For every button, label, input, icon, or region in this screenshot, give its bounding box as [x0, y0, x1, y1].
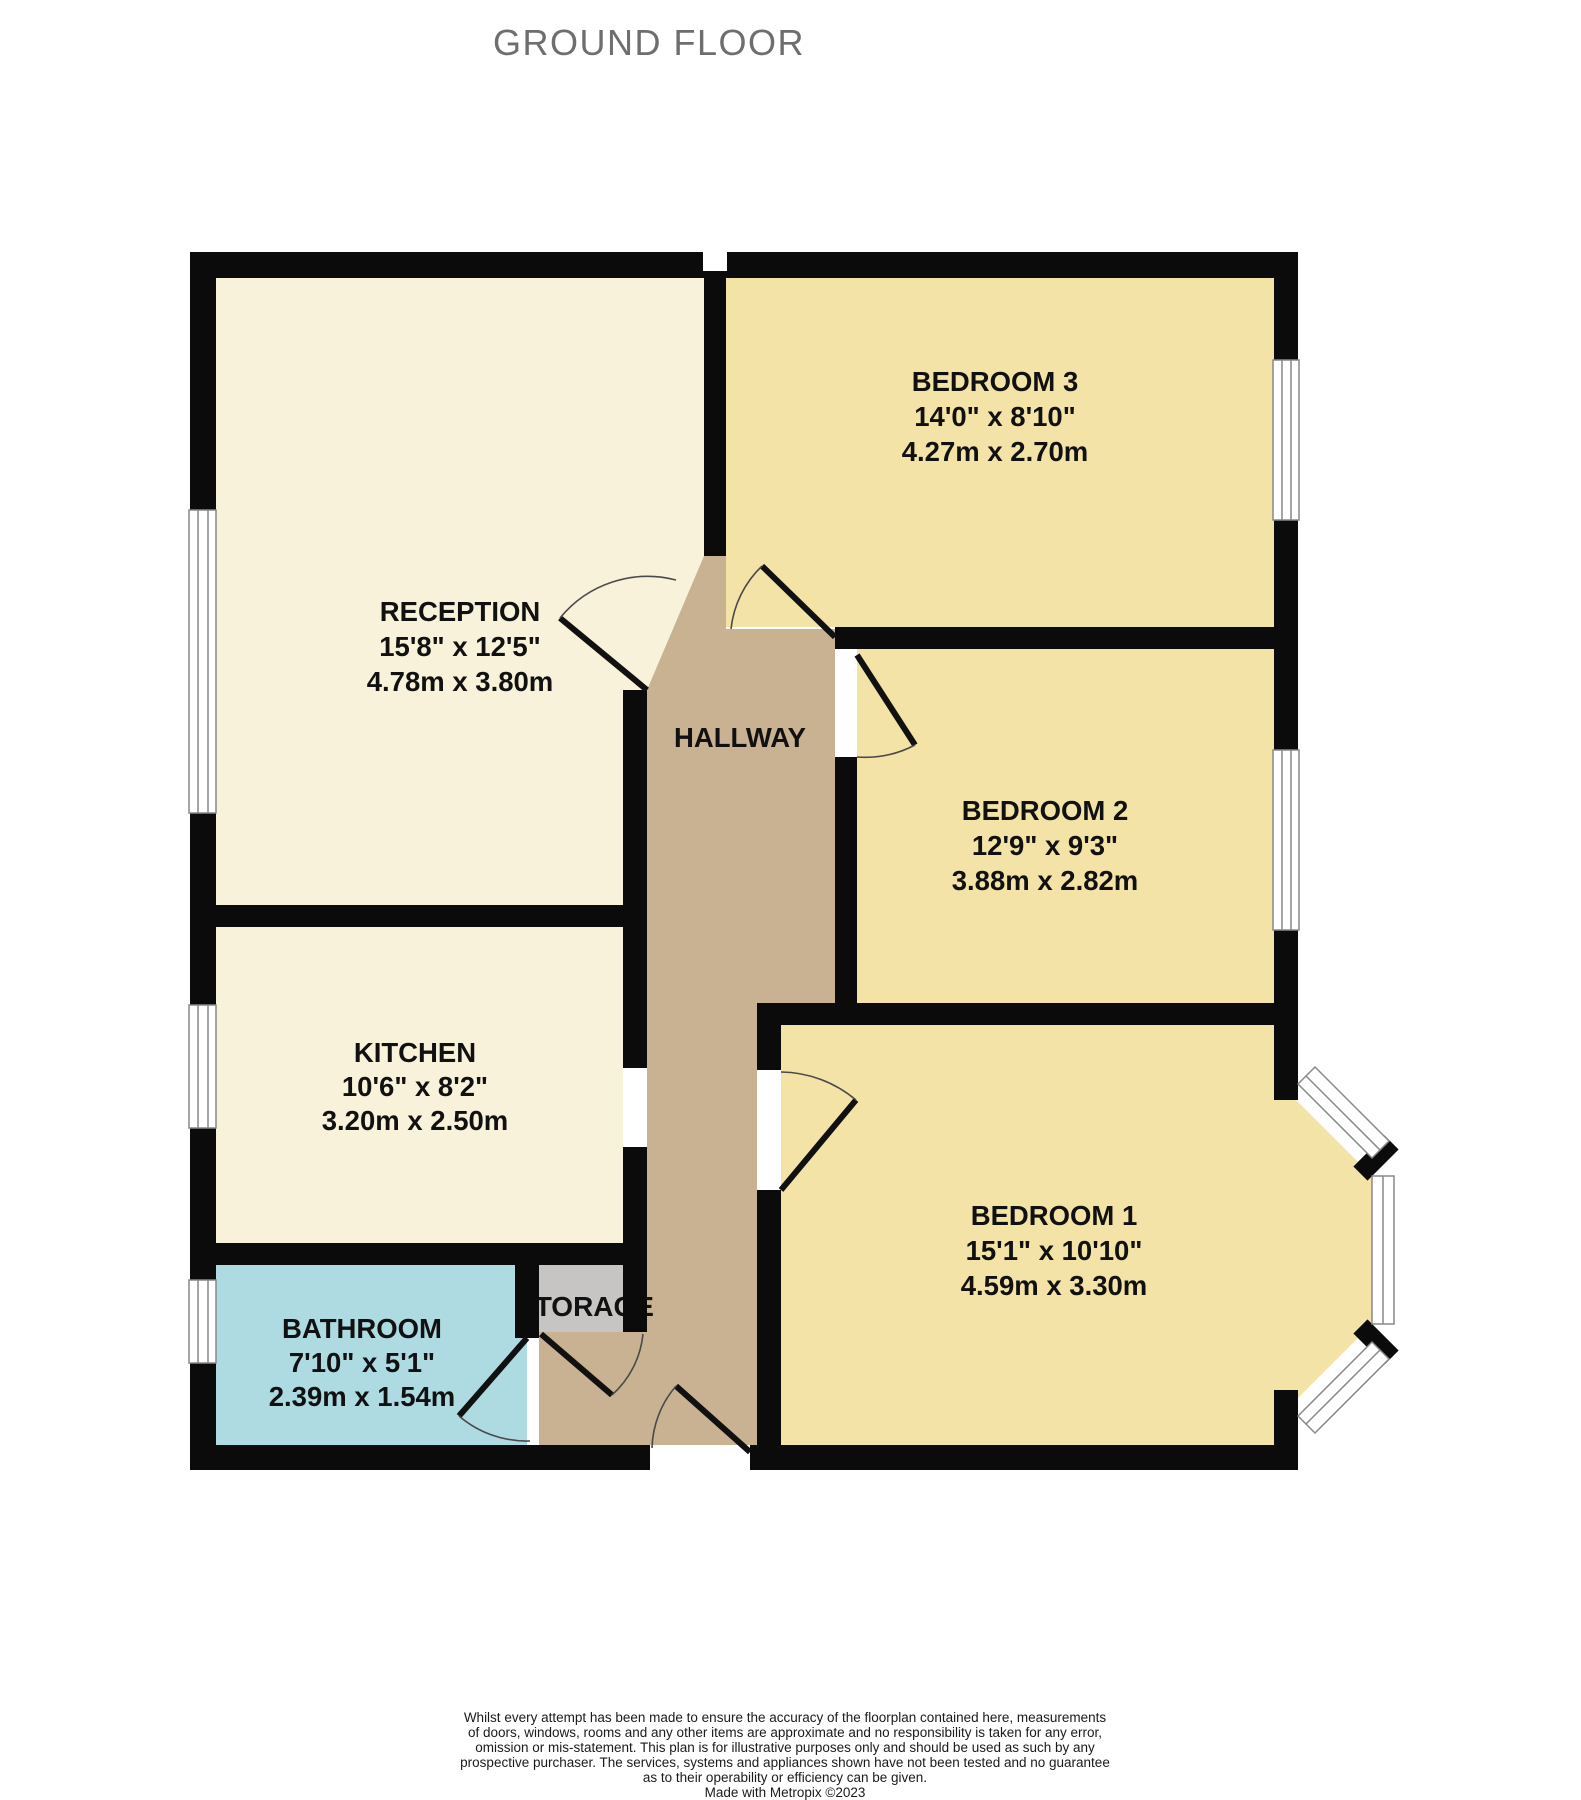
bedroom2-imperial: 12'9" x 9'3": [972, 830, 1118, 861]
wall-reception-kitchen-right: [623, 690, 647, 1068]
bedroom3-window: [1273, 360, 1299, 520]
footer-line: prospective purchaser. The services, sys…: [460, 1755, 1110, 1770]
bedroom1-imperial: 15'1" x 10'10": [966, 1235, 1143, 1266]
bedroom3-label: BEDROOM 3 14'0" x 8'10" 4.27m x 2.70m: [902, 366, 1089, 467]
bedroom3-imperial: 14'0" x 8'10": [914, 401, 1076, 432]
wall-bedroom1-left-upper: [757, 1025, 781, 1070]
wall-bedroom2-left: [835, 757, 857, 1003]
floorplan-page: GROUND FLOOR STORAGE: [0, 0, 1581, 1800]
footer-line: as to their operability or efficiency ca…: [643, 1770, 927, 1785]
bedroom2-label: BEDROOM 2 12'9" x 9'3" 3.88m x 2.82m: [952, 795, 1139, 896]
wall-bedroom3-bedroom2-divider: [835, 627, 1298, 649]
bedroom2-metric: 3.88m x 2.82m: [952, 865, 1139, 896]
bathroom-name: BATHROOM: [282, 1313, 442, 1344]
kitchen-imperial: 10'6" x 8'2": [342, 1071, 488, 1102]
bedroom1-label: BEDROOM 1 15'1" x 10'10" 4.59m x 3.30m: [961, 1200, 1148, 1301]
bedroom3-name: BEDROOM 3: [912, 366, 1079, 397]
wall-bedroom2-bedroom1-divider: [757, 1003, 1298, 1025]
page-title: GROUND FLOOR: [493, 22, 805, 63]
bedroom2-room-area: [857, 649, 1274, 1003]
wall-reception-kitchen-divider: [190, 905, 647, 927]
reception-imperial: 15'8" x 12'5": [379, 631, 541, 662]
reception-label: RECEPTION 15'8" x 12'5" 4.78m x 3.80m: [367, 596, 554, 697]
wall-kitchen-storage-right: [623, 1147, 647, 1332]
bedroom2-window: [1273, 750, 1299, 930]
reception-name: RECEPTION: [380, 596, 540, 627]
bathroom-window: [189, 1280, 216, 1363]
bedroom3-metric: 4.27m x 2.70m: [902, 436, 1089, 467]
wall-top: [190, 252, 1298, 278]
bedroom1-name: BEDROOM 1: [971, 1200, 1138, 1231]
bathroom-label: BATHROOM 7'10" x 5'1" 2.39m x 1.54m: [269, 1313, 456, 1412]
wall-bathroom-storage: [515, 1243, 539, 1338]
footer-disclaimer: Whilst every attempt has been made to en…: [460, 1710, 1110, 1800]
reception-window: [189, 510, 216, 813]
wall-kitchen-bathroom-divider: [190, 1243, 647, 1265]
floorplan-canvas: GROUND FLOOR STORAGE: [0, 0, 1581, 1800]
reception-metric: 4.78m x 3.80m: [367, 666, 554, 697]
bedroom2-name: BEDROOM 2: [962, 795, 1129, 826]
bedroom1-metric: 4.59m x 3.30m: [961, 1270, 1148, 1301]
kitchen-metric: 3.20m x 2.50m: [322, 1105, 509, 1136]
footer-line: Whilst every attempt has been made to en…: [464, 1710, 1107, 1725]
wall-reception-bedroom3: [704, 252, 726, 556]
footer-line: of doors, windows, rooms and any other i…: [468, 1725, 1102, 1740]
footer-made-with: Made with Metropix ©2023: [705, 1785, 866, 1800]
wall-bedroom1-left-lower: [757, 1190, 781, 1445]
footer-line: omission or mis-statement. This plan is …: [475, 1740, 1095, 1755]
bathroom-metric: 2.39m x 1.54m: [269, 1381, 456, 1412]
hallway-label: HALLWAY: [674, 722, 806, 753]
bathroom-imperial: 7'10" x 5'1": [289, 1347, 435, 1378]
top-wall-notch: [703, 252, 727, 271]
entrance-opening: [650, 1445, 750, 1470]
kitchen-window: [189, 1005, 216, 1128]
kitchen-name: KITCHEN: [354, 1037, 476, 1068]
wall-right-lower: [1274, 1390, 1298, 1470]
